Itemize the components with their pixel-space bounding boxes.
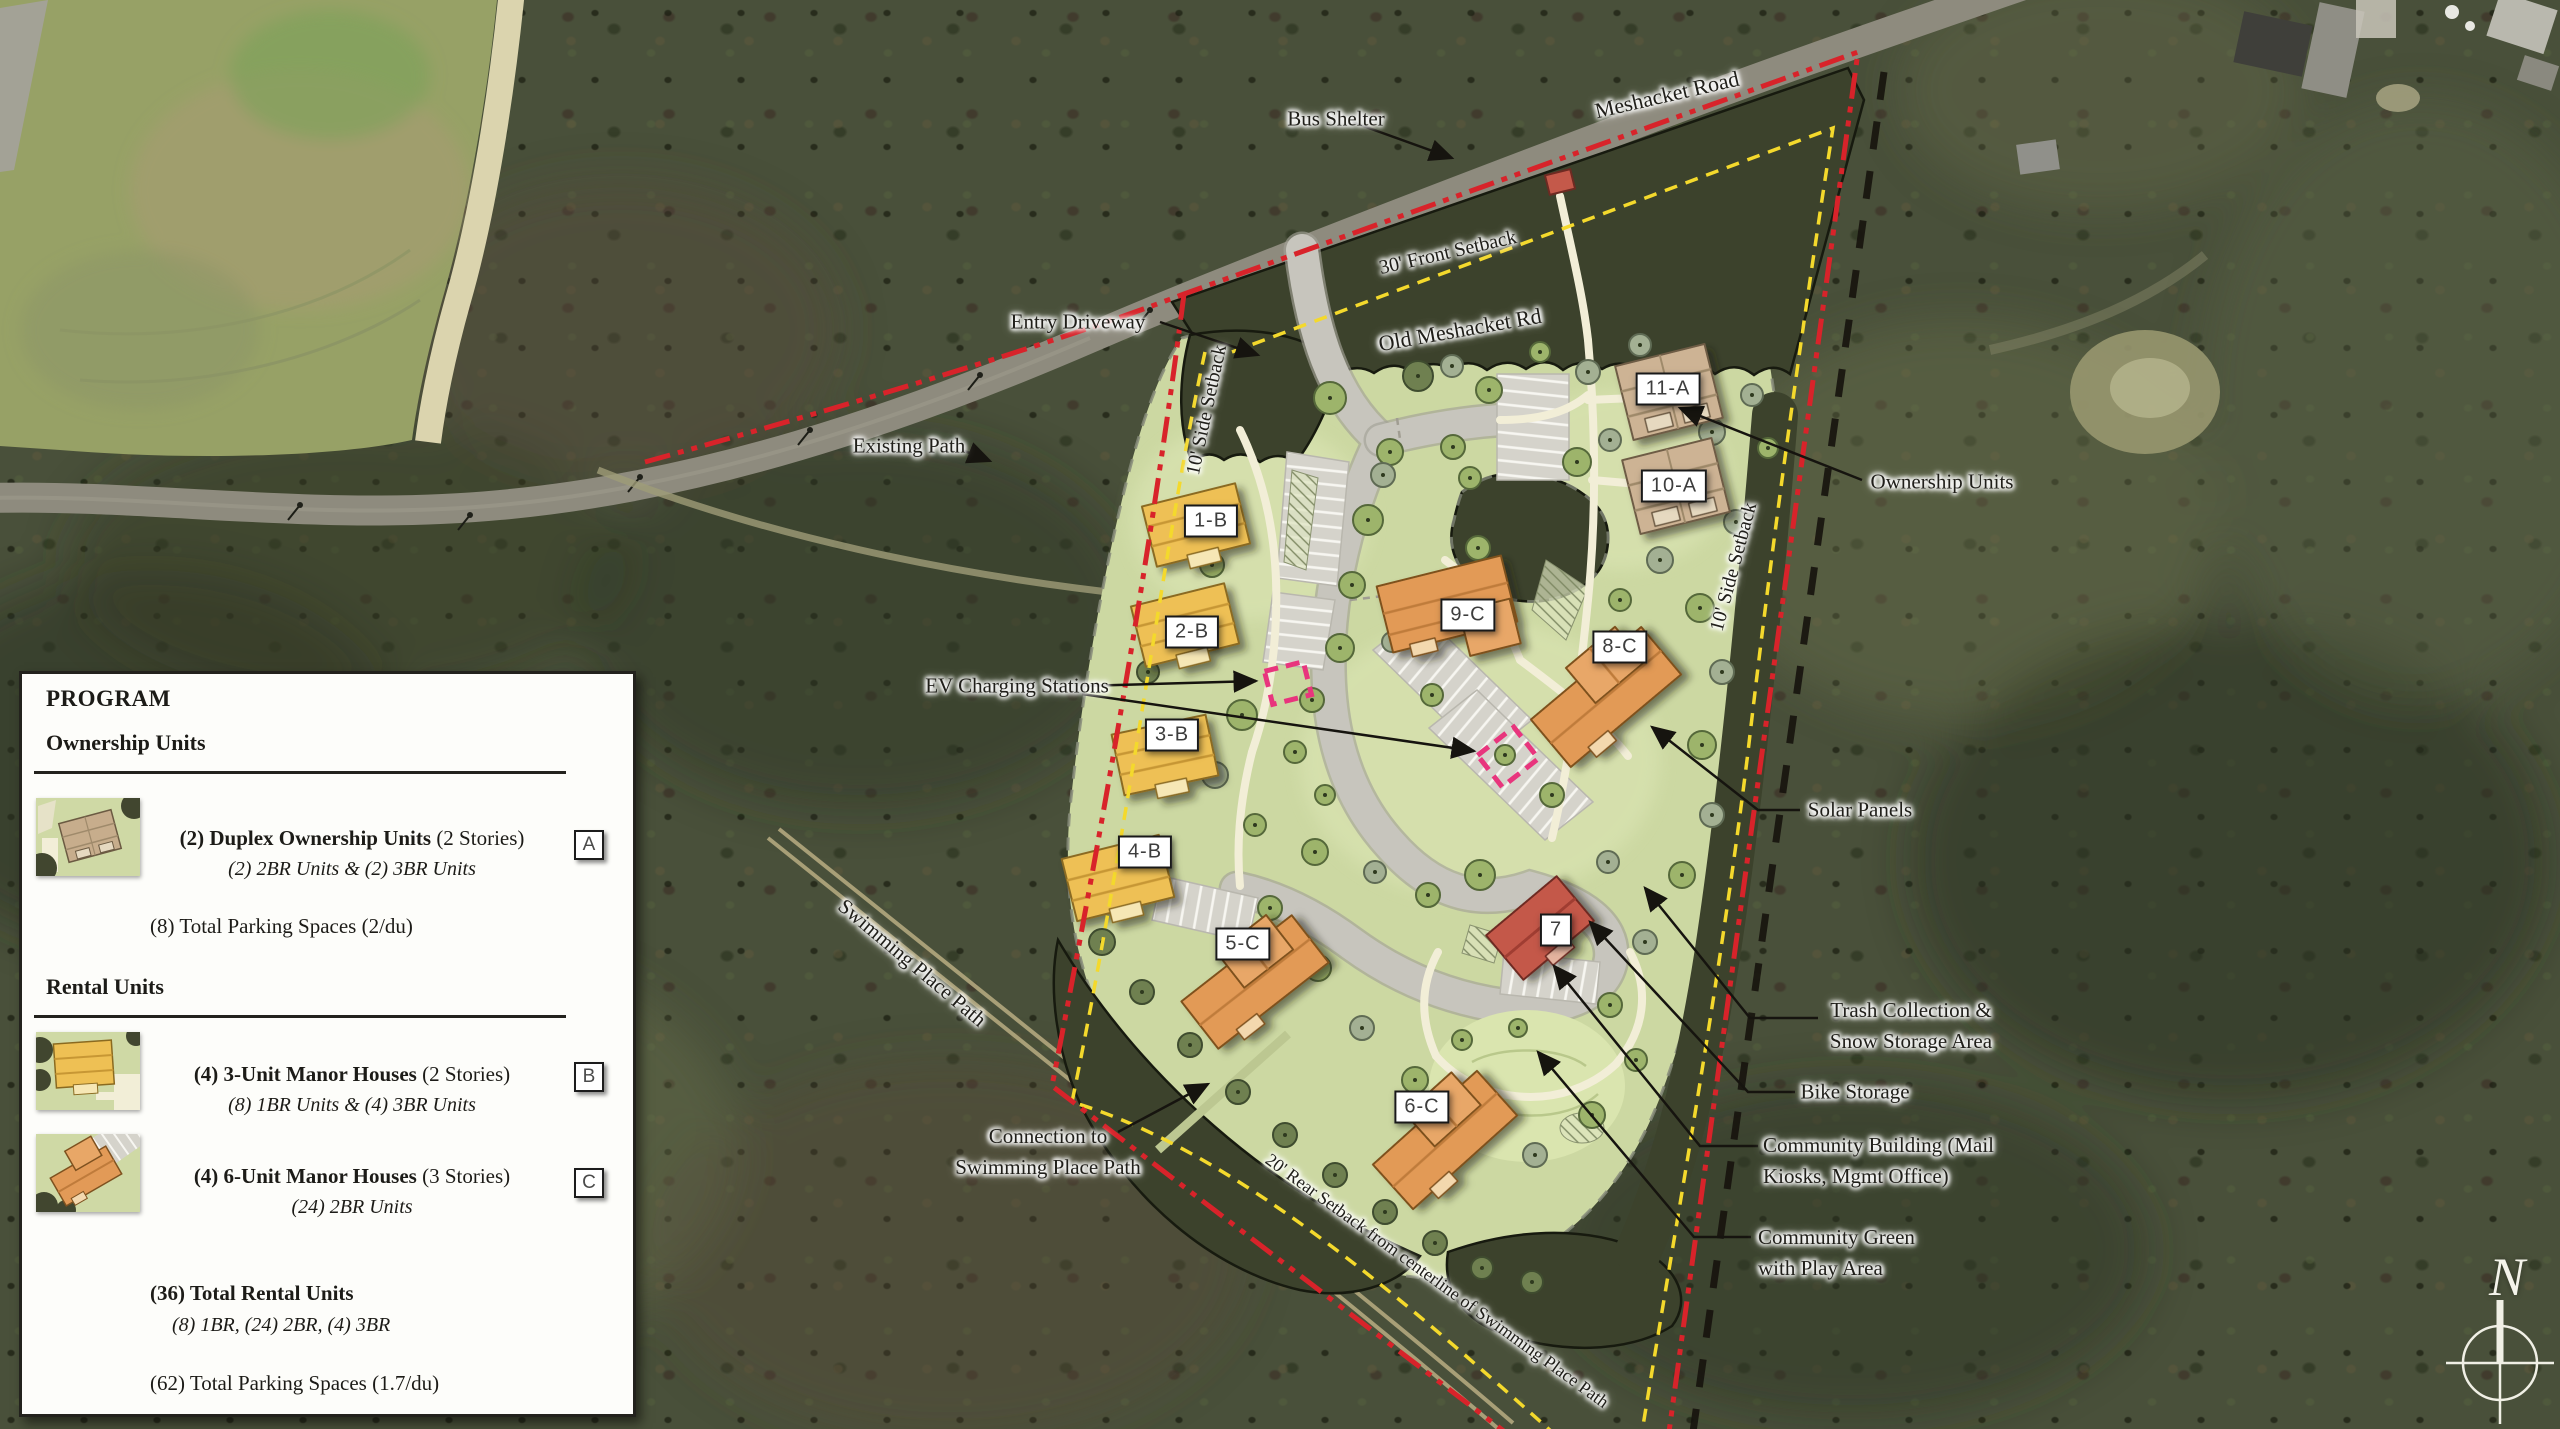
unit-type-tag-C: C xyxy=(574,1168,604,1198)
manor3-bold: (4) 3-Unit Manor Houses xyxy=(194,1062,417,1086)
connection-line1: Connection to xyxy=(955,1121,1141,1152)
solar-panels-label: Solar Panels xyxy=(1808,798,1912,823)
community-building-label: Community Building (Mail Kiosks, Mgmt Of… xyxy=(1763,1130,1994,1192)
rental-parking: (62) Total Parking Spaces (1.7/du) xyxy=(150,1371,439,1396)
rental-total-breakdown: (8) 1BR, (24) 2BR, (4) 3BR xyxy=(172,1314,390,1337)
site-plan-canvas: Bus Shelter Meshacket Road 30' Front Set… xyxy=(0,0,2560,1429)
trash-collection-line2: Snow Storage Area xyxy=(1830,1026,1992,1057)
program-legend-panel: PROGRAM Ownership Units (2) Duplex Owner… xyxy=(19,671,636,1417)
unit-type-tag-A: A xyxy=(574,830,604,860)
existing-path-label: Existing Path xyxy=(853,434,966,459)
building-tag-2B: 2-B xyxy=(1165,616,1219,649)
building-tag-6C: 6-C xyxy=(1394,1091,1449,1124)
rental-rule xyxy=(34,1015,566,1018)
unit-type-tag-B: B xyxy=(574,1062,604,1092)
manor6-thumbnail xyxy=(36,1134,140,1212)
open-field xyxy=(0,0,512,456)
connection-label: Connection to Swimming Place Path xyxy=(955,1121,1141,1183)
duplex-bold: (2) Duplex Ownership Units xyxy=(180,826,431,850)
entry-driveway-label: Entry Driveway xyxy=(1011,310,1146,335)
building-tag-5C: 5-C xyxy=(1215,928,1270,961)
bus-shelter-label: Bus Shelter xyxy=(1287,107,1384,132)
rental-units-heading: Rental Units xyxy=(46,974,164,1000)
manor6-rest: (3 Stories) xyxy=(417,1164,510,1188)
community-green-line1: Community Green xyxy=(1758,1222,1915,1253)
community-building-line1: Community Building (Mail xyxy=(1763,1130,1994,1161)
duplex-thumbnail xyxy=(36,798,140,876)
building-tag-8C: 8-C xyxy=(1592,631,1647,664)
compass-rose-icon xyxy=(2446,1300,2554,1424)
building-tag-3B: 3-B xyxy=(1145,719,1199,752)
building-tag-9C: 9-C xyxy=(1440,599,1495,632)
manor3-rest: (2 Stories) xyxy=(417,1062,510,1086)
community-building-line2: Kiosks, Mgmt Office) xyxy=(1763,1161,1994,1192)
ev-charging-label: EV Charging Stations xyxy=(925,674,1109,699)
ownership-rule xyxy=(34,771,566,774)
community-green-line2: with Play Area xyxy=(1758,1253,1915,1284)
connection-line2: Swimming Place Path xyxy=(955,1152,1141,1183)
trash-collection-line1: Trash Collection & xyxy=(1830,995,1992,1026)
ownership-units-heading: Ownership Units xyxy=(46,730,206,756)
manor6-row-line1: (4) 6-Unit Manor Houses (3 Stories) xyxy=(140,1164,564,1189)
trash-collection-label: Trash Collection & Snow Storage Area xyxy=(1830,995,1992,1057)
manor6-row-line2: (24) 2BR Units xyxy=(140,1196,564,1219)
building-tag-11A: 11-A xyxy=(1636,373,1701,406)
manor3-thumbnail xyxy=(36,1032,140,1110)
duplex-rest: (2 Stories) xyxy=(431,826,524,850)
community-green-label: Community Green with Play Area xyxy=(1758,1222,1915,1284)
building-tag-7: 7 xyxy=(1540,914,1572,947)
duplex-row-line1: (2) Duplex Ownership Units (2 Stories) xyxy=(140,826,564,851)
manor3-row-line1: (4) 3-Unit Manor Houses (2 Stories) xyxy=(140,1062,564,1087)
legend-title: PROGRAM xyxy=(46,686,171,712)
manor3-row-line2: (8) 1BR Units & (4) 3BR Units xyxy=(140,1094,564,1117)
ownership-units-label: Ownership Units xyxy=(1871,470,2014,495)
building-tag-1B: 1-B xyxy=(1184,505,1238,538)
rental-total: (36) Total Rental Units xyxy=(150,1281,354,1306)
building-tag-10A: 10-A xyxy=(1641,470,1707,503)
duplex-row-line2: (2) 2BR Units & (2) 3BR Units xyxy=(140,858,564,881)
manor6-bold: (4) 6-Unit Manor Houses xyxy=(194,1164,417,1188)
building-tag-4B: 4-B xyxy=(1118,836,1172,869)
bike-storage-label: Bike Storage xyxy=(1800,1080,1909,1105)
compass-north-letter: N xyxy=(2489,1246,2525,1308)
ownership-parking: (8) Total Parking Spaces (2/du) xyxy=(150,914,413,939)
